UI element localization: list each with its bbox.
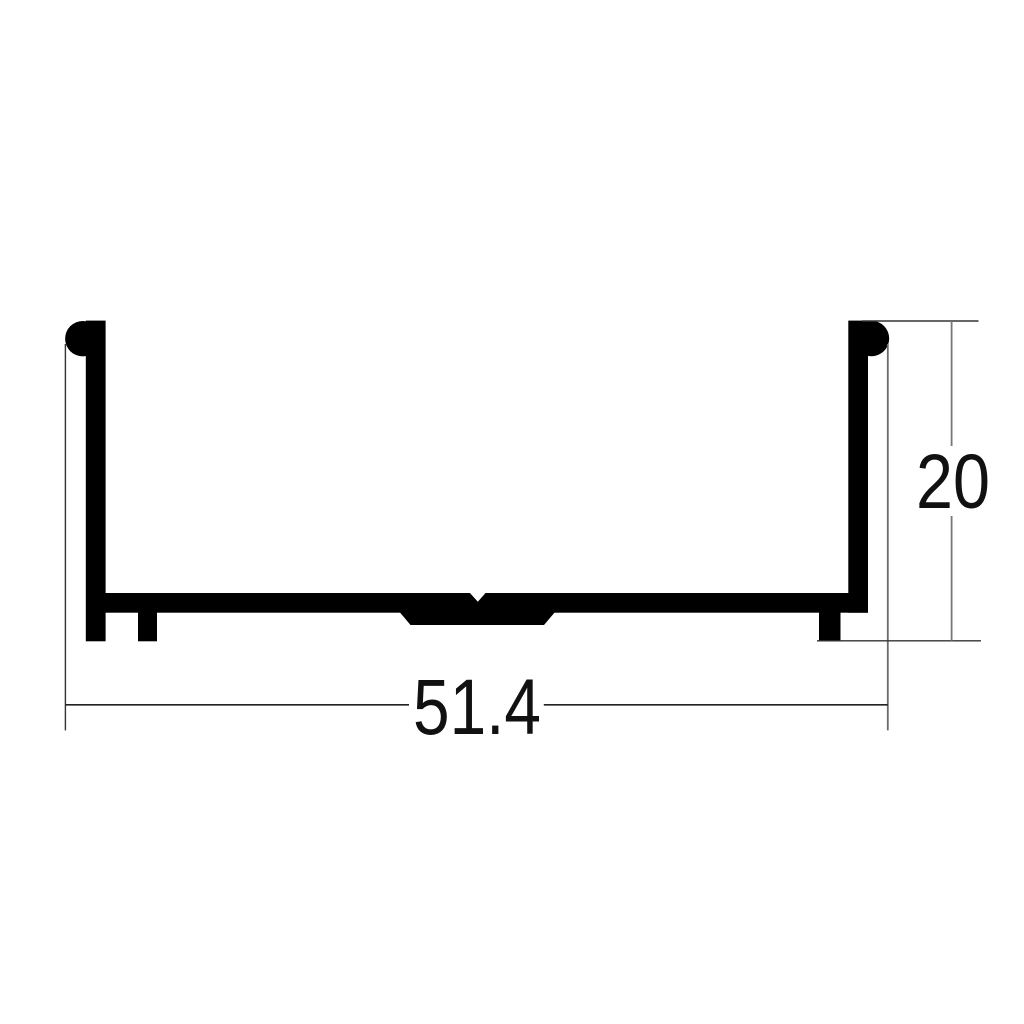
svg-text:20: 20 [916, 439, 990, 525]
svg-text:51.4: 51.4 [413, 662, 541, 751]
